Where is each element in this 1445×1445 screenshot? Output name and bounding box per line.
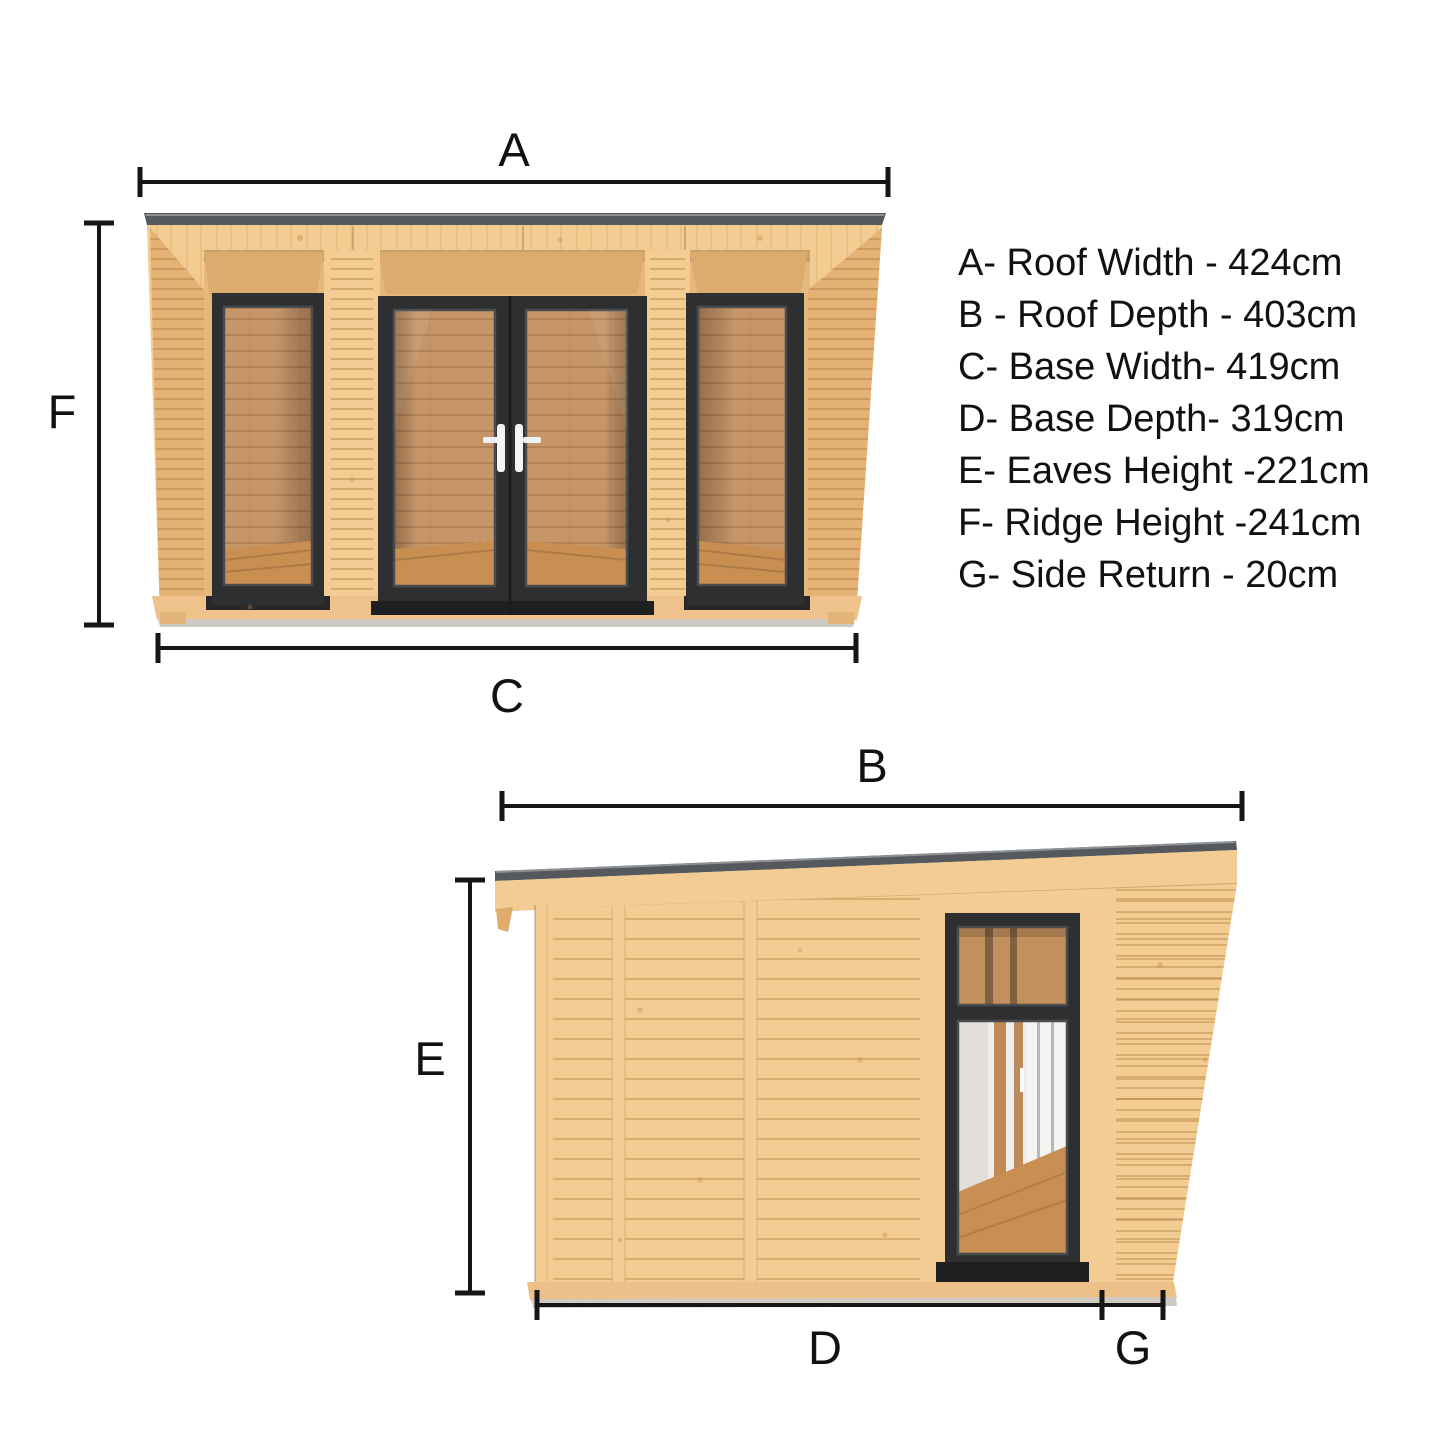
side-door bbox=[936, 913, 1089, 1282]
dimension-label-c: C bbox=[490, 669, 524, 722]
legend-item-side-return: G- Side Return - 20cm bbox=[958, 549, 1370, 601]
roof-support-bracket bbox=[496, 907, 513, 932]
dimension-legend: A- Roof Width - 424cm B - Roof Depth - 4… bbox=[958, 237, 1370, 601]
dimension-label-g: G bbox=[1115, 1321, 1152, 1374]
legend-item-roof-depth: B - Roof Depth - 403cm bbox=[958, 289, 1370, 341]
dimension-line-a: A bbox=[140, 123, 888, 197]
side-door-glass bbox=[958, 1021, 1067, 1254]
dimension-line-f: F bbox=[48, 223, 114, 625]
dimension-line-b: B bbox=[502, 739, 1242, 821]
dimension-label-b: B bbox=[856, 739, 887, 792]
dimension-diagram: A C F bbox=[0, 0, 1445, 1445]
legend-item-base-depth: D- Base Depth- 319cm bbox=[958, 393, 1370, 445]
dimension-label-d: D bbox=[808, 1321, 842, 1374]
dimension-line-c: C bbox=[158, 633, 856, 722]
legend-item-ridge-height: F- Ridge Height -241cm bbox=[958, 497, 1370, 549]
front-elevation: A C F bbox=[48, 123, 888, 722]
dimension-label-e: E bbox=[414, 1032, 445, 1085]
legend-item-base-width: C- Base Width- 419cm bbox=[958, 341, 1370, 393]
front-double-doors bbox=[371, 296, 654, 615]
front-right-window bbox=[684, 293, 810, 610]
dimension-label-f: F bbox=[48, 385, 77, 438]
legend-item-roof-width: A- Roof Width - 424cm bbox=[958, 237, 1370, 289]
side-elevation: B E D G bbox=[414, 739, 1252, 1374]
dimension-label-a: A bbox=[498, 123, 530, 176]
legend-item-eaves-height: E- Eaves Height -221cm bbox=[958, 445, 1370, 497]
front-left-window bbox=[206, 293, 330, 610]
dimension-line-e: E bbox=[414, 880, 485, 1293]
elevation-drawings: A C F bbox=[0, 0, 1445, 1445]
